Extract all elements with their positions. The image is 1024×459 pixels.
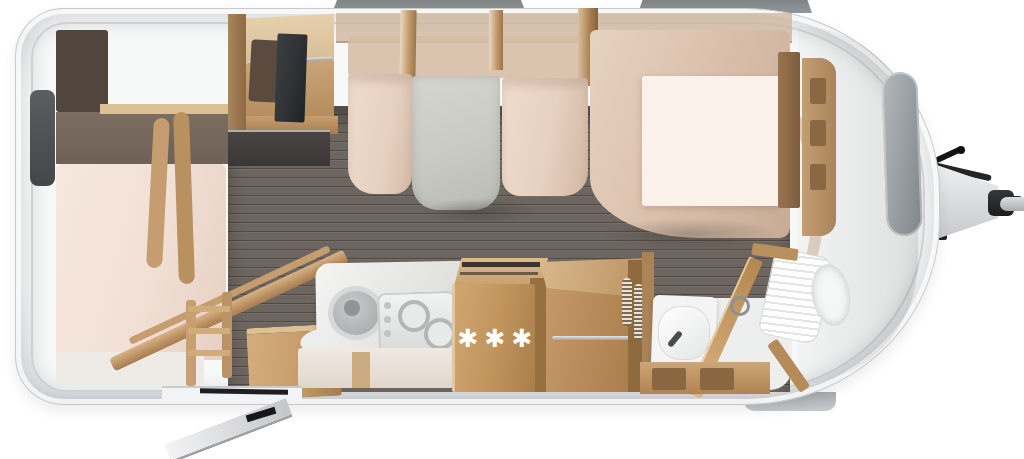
sink-drain <box>344 300 360 316</box>
stove-knob <box>384 330 391 337</box>
ladder-post <box>222 292 232 378</box>
dinette-bench-right <box>502 78 588 196</box>
hitch-ball-tip <box>1000 197 1024 211</box>
snowflake-icon: ✱ <box>485 326 506 351</box>
tv-panel <box>274 34 307 123</box>
bed-head-board <box>778 52 800 208</box>
table-floor-shadow <box>420 198 540 224</box>
wardrobe-side-panel <box>228 14 246 136</box>
rear-wall-window <box>30 90 55 186</box>
ladder-rung <box>188 306 230 312</box>
handbrake-knob <box>957 146 965 154</box>
caravan-floorplan-render: ✱ ✱ ✱ <box>0 0 1024 459</box>
wardrobe2-clothes-rail <box>552 336 636 340</box>
kitchen-front-divider <box>352 352 370 388</box>
cabinet-cubby <box>652 368 686 390</box>
entry-door-open <box>164 398 293 459</box>
door-handle <box>730 296 750 316</box>
french-bed-mattress <box>642 76 780 206</box>
door-shadow-gap <box>246 407 277 422</box>
stove-knob <box>384 302 391 309</box>
shelf-cubby <box>810 164 826 190</box>
fridge-front: ✱ ✱ ✱ <box>452 284 535 392</box>
ladder-rung <box>188 328 230 334</box>
bunk-wall-padding <box>56 112 228 164</box>
dinette-bench-left <box>348 74 412 194</box>
bunk-headboard-pad <box>56 30 108 112</box>
dinette-table <box>412 76 500 210</box>
snowflake-icon: ✱ <box>511 326 532 351</box>
kitchen-dark-counter <box>228 130 330 166</box>
hinge-coil <box>622 278 632 326</box>
ladder-post <box>186 300 196 386</box>
kitchen-lower-front <box>298 348 458 388</box>
stove-knob <box>384 316 391 323</box>
fridge-lid-slot <box>460 272 538 275</box>
dinette-backrest <box>348 36 588 78</box>
snowflake-icon: ✱ <box>458 326 479 351</box>
cabinet-cubby <box>700 368 734 390</box>
shelf-cubby <box>810 120 826 146</box>
front-window <box>881 71 923 236</box>
fridge-lid-slot <box>462 262 540 267</box>
ladder-rung <box>188 350 230 356</box>
partition-wall <box>489 10 503 70</box>
shelf-cubby <box>810 78 826 104</box>
washbasin <box>658 306 710 360</box>
partition-wall <box>399 10 416 78</box>
upper-bunk-frame <box>100 104 230 114</box>
